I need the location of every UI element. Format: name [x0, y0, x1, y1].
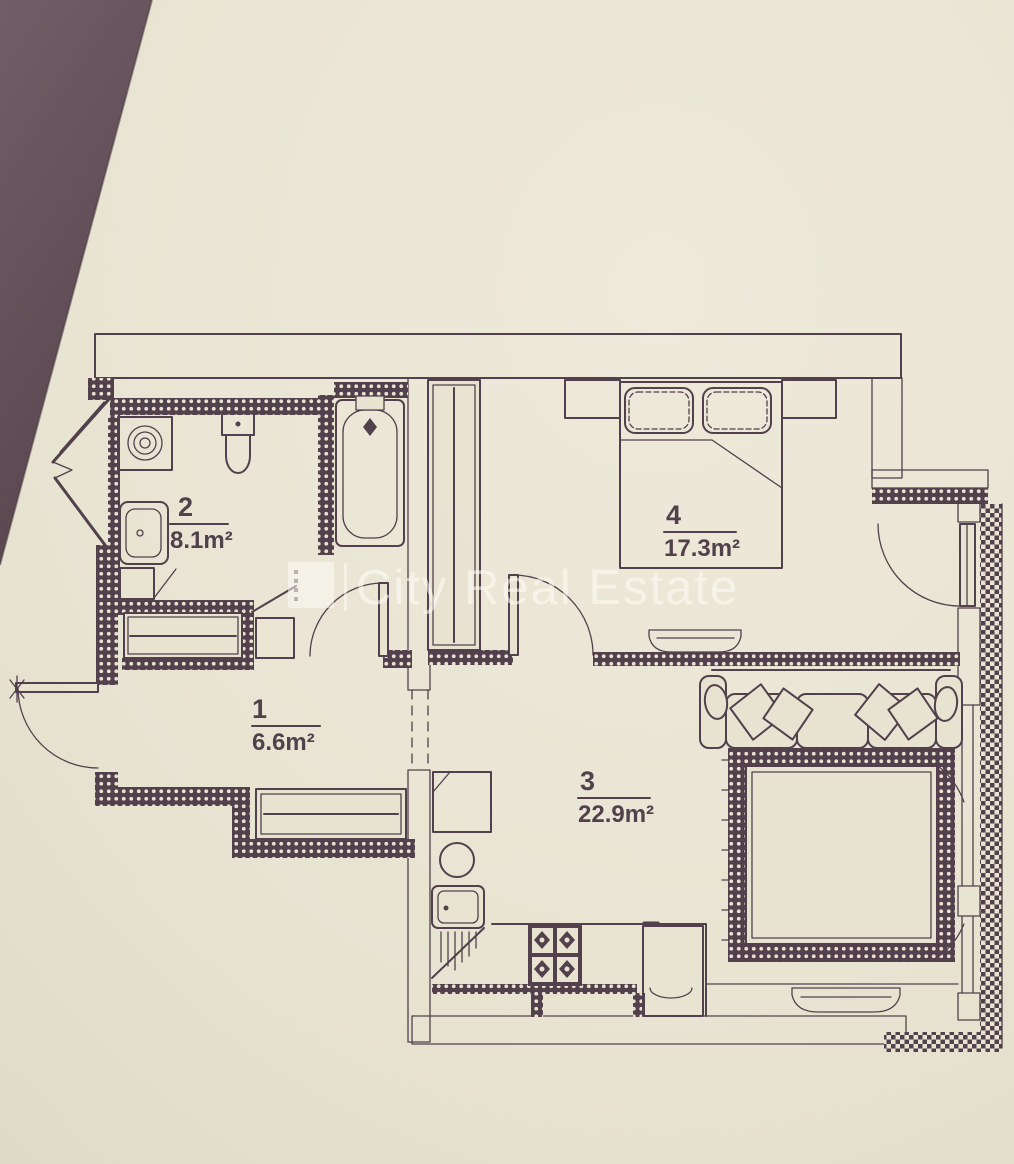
photo-crease-overlay — [0, 0, 1014, 1164]
floor-plan-photo: 1 6.6m² 2 8.1m² 3 22.9m² 4 17.3m² — [0, 0, 1014, 1164]
floor-plan-drawing: 1 6.6m² 2 8.1m² 3 22.9m² 4 17.3m² — [0, 0, 1014, 1164]
